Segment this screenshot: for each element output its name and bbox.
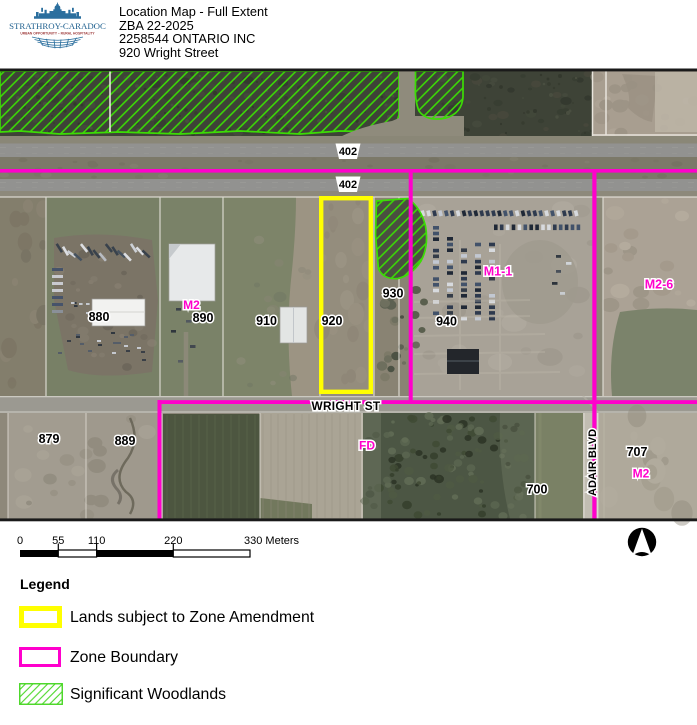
svg-text:0: 0 [17,535,23,547]
svg-text:402: 402 [339,179,357,191]
svg-text:M2: M2 [183,298,200,312]
svg-text:920: 920 [322,314,343,328]
svg-text:330 Meters: 330 Meters [244,535,300,547]
svg-text:M2: M2 [633,467,650,481]
svg-text:880: 880 [89,310,110,324]
svg-text:FD: FD [359,439,375,453]
svg-text:707: 707 [627,445,648,459]
svg-text:M1-1: M1-1 [484,265,513,279]
svg-text:879: 879 [39,432,60,446]
svg-text:940: 940 [436,315,457,329]
svg-text:930: 930 [383,287,404,301]
svg-text:402: 402 [339,146,357,158]
svg-text:890: 890 [193,311,214,325]
svg-text:700: 700 [527,483,548,497]
svg-text:910: 910 [256,314,277,328]
svg-text:WRIGHT ST: WRIGHT ST [312,399,381,413]
svg-text:ADAIR BLVD: ADAIR BLVD [587,429,599,496]
svg-text:M2-6: M2-6 [645,278,674,292]
svg-text:889: 889 [115,434,136,448]
